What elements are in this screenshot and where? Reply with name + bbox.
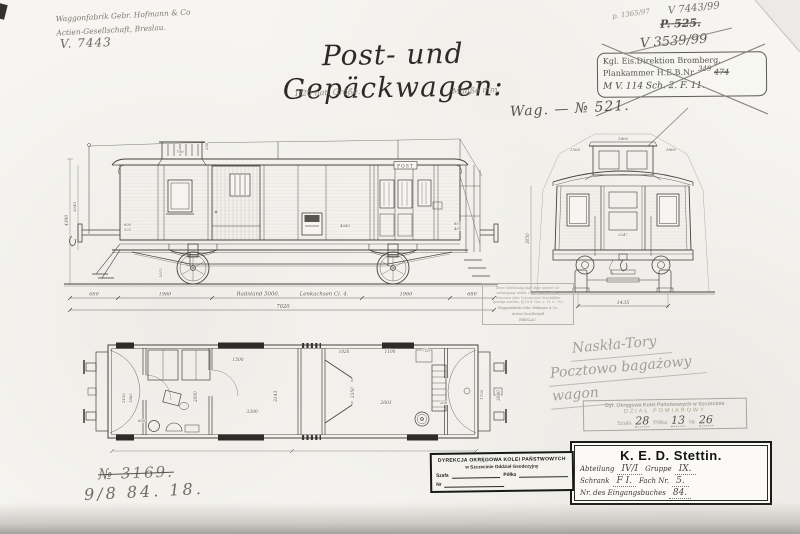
dim-680-right: 680 <box>467 292 477 298</box>
stamp-bromberg-crossed-number: 474 <box>714 68 729 77</box>
nr-value: 26 <box>699 414 713 426</box>
dim-522: 522 <box>124 227 132 232</box>
dim-plan-1100: 1100 <box>385 349 396 354</box>
roof-lookout: 700 250 <box>158 142 209 165</box>
end-lookout: 1500 1400 1800 <box>570 136 677 180</box>
schrank-label: Schrank <box>580 477 610 485</box>
gruppe-label: Gruppe <box>645 465 672 473</box>
firm-line: Actien-Gesellschaft <box>486 312 570 317</box>
dim-plan-2603: 2603 <box>379 401 391 406</box>
length-dimensions: 680 1960 Radstand 5000, Lenkachsen Cl. 4… <box>68 292 496 313</box>
plan-left-end <box>110 350 140 433</box>
dim-plan-2000: 2000 <box>193 391 198 403</box>
post-sign: POST <box>394 162 417 170</box>
polka-value: 13 <box>671 415 685 427</box>
dim-plan-3080: 3080 <box>496 390 501 401</box>
stamp-ked-stettin: K. E. D. Stettin. Abteilung IV/I Gruppe … <box>570 441 772 505</box>
dim-height-inner: 3045 <box>72 201 77 212</box>
scanned-drawing-sheet: Waggonfabrik Gebr. Hofmann & Co Actien-G… <box>0 0 800 534</box>
dim-1400: 1400 <box>618 136 629 141</box>
eingang-label: Nr. des Eingangsbuches <box>580 489 666 497</box>
dim-plan-200: 200 <box>439 400 448 405</box>
dim-plan-1500: 1500 <box>232 358 243 363</box>
blank-line <box>444 480 504 487</box>
plan-outer-wall <box>108 345 478 438</box>
blank-line <box>452 472 501 479</box>
ked-title: K. E. D. Stettin. <box>580 448 762 463</box>
letter-box <box>302 213 322 235</box>
firm-line: Waggonfabrik Gebr. Hofmann & Co. <box>486 306 570 311</box>
dim-total-length: 7020 <box>276 304 290 310</box>
szafa-label: Szafa <box>617 421 631 427</box>
dim-680-left: 680 <box>89 292 99 298</box>
dim-plan-3300: 3300 <box>246 409 258 415</box>
filing-note-crossed2: V 3539/99 <box>640 32 708 52</box>
dim-end-height: 3050 <box>525 233 530 244</box>
dim-radstand: Radstand 5000, <box>235 292 279 298</box>
blank-line <box>519 471 568 478</box>
dim-5247: 5247 <box>618 233 628 237</box>
dim-plan-1865: 1865 <box>128 393 133 403</box>
plan-buffers <box>84 352 506 431</box>
dim-plan-2350: 2350 <box>350 387 355 399</box>
stamp-bromberg: Kgl. Eis.Direktion Bromberg. Plankammer … <box>597 51 767 97</box>
szafa-value: 28 <box>635 415 649 427</box>
dim-1960-left: 1960 <box>159 292 173 298</box>
dim-400: 400 <box>453 226 462 231</box>
dim-lookout-width: 700 <box>176 149 184 154</box>
side-elevation-drawing: 700 250 <box>62 126 500 326</box>
abteilung-label: Abteilung <box>580 465 614 473</box>
end-roof <box>553 171 693 182</box>
end-body: 5247 <box>555 186 691 256</box>
dim-lookout-height: 250 <box>204 142 209 151</box>
fach-label: Fach Nr. <box>639 477 669 485</box>
underframe <box>112 240 468 266</box>
abteilung-value: IV/I <box>617 465 642 475</box>
fach-value: 5. <box>672 477 689 487</box>
dim-gauge-1435: 1435 <box>617 300 630 306</box>
stamp-dyrekcja-geodezyjny: DYREKCJA OKRĘGOWA KOLEI PAŃSTWOWYCH w Sz… <box>430 451 575 493</box>
geodezyjny-polka-label: Półka <box>503 472 516 477</box>
scan-edge-mark <box>0 3 8 19</box>
geodezyjny-nr-label: Nr <box>436 482 441 487</box>
side-window-left <box>166 180 194 214</box>
stamp-bromberg-line3: M V. 114 Sch. 2. F. 11. <box>603 79 761 95</box>
dim-4043: 4043 <box>339 223 351 228</box>
dim-lenkachsen: Lenkachsen Cl. 4. <box>299 292 349 298</box>
schrank-value: F I. <box>613 477 637 487</box>
dim-plan-600: 600 <box>138 418 146 423</box>
notice-line: nehmigung weder copirt noch dritten <box>486 291 570 296</box>
firm-line: BRESLAU. <box>486 318 570 323</box>
plan-vestibule <box>325 360 352 423</box>
gauge-dimension: 1435 <box>576 294 670 308</box>
dim-plan-2450: 2450 <box>121 393 126 404</box>
maker-number: V. 7443 <box>60 35 112 51</box>
plan-bottom-dim <box>110 449 478 453</box>
dim-1012: 1012 <box>158 268 163 278</box>
drawing-title: Post- und Gepäckwagen: <box>227 35 558 107</box>
end-buffers <box>553 250 693 282</box>
dim-plan-3143: 3143 <box>274 391 279 402</box>
plan-post-compartment <box>148 350 210 432</box>
plan-partitions <box>143 348 448 435</box>
plan-right-compartment <box>415 350 446 426</box>
left-buffer-gear <box>70 165 125 278</box>
nr-label: № <box>689 419 695 425</box>
stamp-dzial-pomiarowy: Dyr. Okręgowa Kolei Państwowych w Szczec… <box>583 398 748 432</box>
filing-note-number: V 7443/99 <box>668 0 721 16</box>
height-dimensions: 4300 3045 <box>65 159 78 284</box>
scan-shadow-bottom <box>0 502 800 534</box>
eingang-value: 84. <box>669 489 691 499</box>
post-sign-text: POST <box>397 163 414 169</box>
filing-note-small: p. 1365/97 <box>612 7 651 20</box>
hofmann-notice-stamp: Diese Zeichnung darf ohne unsere Ge- neh… <box>482 283 574 325</box>
stamp-bromberg-overwrite: 349 <box>698 65 711 73</box>
right-platform <box>456 165 498 276</box>
notice-line: gezeigt werden. (§ 18 d. Ges. v. 11. 6. … <box>486 300 570 305</box>
units-note: Maaße mm. <box>452 85 500 96</box>
plan-view-drawing: 1500 3300 3143 2000 2450 1865 600 1020 1… <box>80 330 510 465</box>
dim-1500: 1500 <box>570 147 581 152</box>
dim-1960-right: 1960 <box>400 292 414 298</box>
dim-plan-1020: 1020 <box>339 349 350 354</box>
dim-plan-1700: 1700 <box>479 389 484 400</box>
dim-1800: 1800 <box>666 147 677 152</box>
polish-pencil-note: Naskła-Tory Pocztowo bagażowy wagon <box>545 327 708 409</box>
plan-right-end <box>448 350 476 433</box>
gruppe-value: IX. <box>675 465 696 475</box>
polka-label: Półka <box>653 420 667 426</box>
dim-plan-710: 710 <box>422 348 430 353</box>
post-door <box>212 166 260 240</box>
geodezyjny-szafa-label: Szafa <box>436 473 449 478</box>
filing-note-crossed: P. 525. <box>660 16 701 30</box>
dim-height-left: 4300 <box>65 215 70 227</box>
